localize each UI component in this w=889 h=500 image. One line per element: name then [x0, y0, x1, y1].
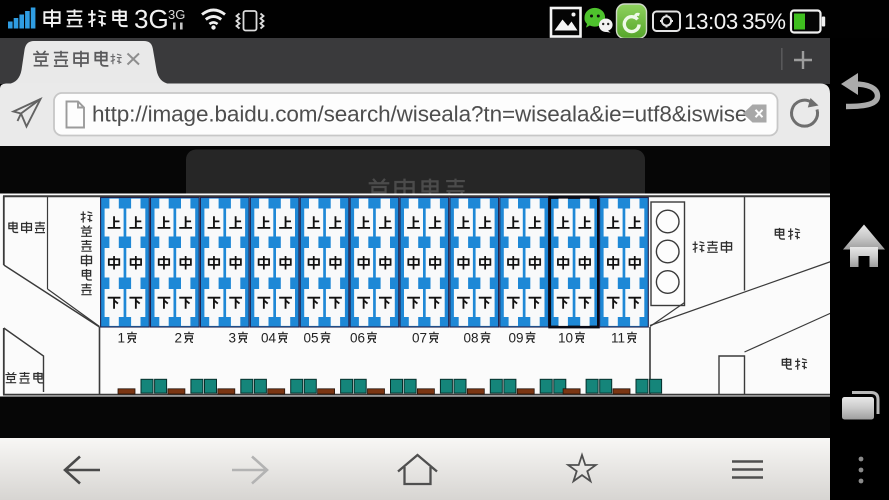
svg-text:04: 04	[261, 331, 277, 346]
svg-text:09: 09	[508, 331, 523, 346]
svg-text:13:03: 13:03	[684, 9, 738, 34]
svg-text:2: 2	[174, 331, 182, 346]
svg-text:http://image.baidu.com/search/: http://image.baidu.com/search/wiseala?tn…	[92, 102, 747, 127]
svg-text:3G: 3G	[168, 7, 185, 22]
svg-text:05: 05	[303, 331, 318, 346]
svg-text:3G: 3G	[134, 4, 169, 34]
svg-text:11: 11	[611, 331, 625, 346]
svg-text:08: 08	[463, 331, 478, 346]
svg-text:07: 07	[412, 331, 427, 346]
svg-text:06: 06	[350, 331, 365, 346]
svg-text:3: 3	[228, 331, 236, 346]
svg-text:35%: 35%	[742, 9, 786, 34]
svg-text:10: 10	[558, 331, 573, 346]
svg-text:1: 1	[117, 331, 125, 346]
